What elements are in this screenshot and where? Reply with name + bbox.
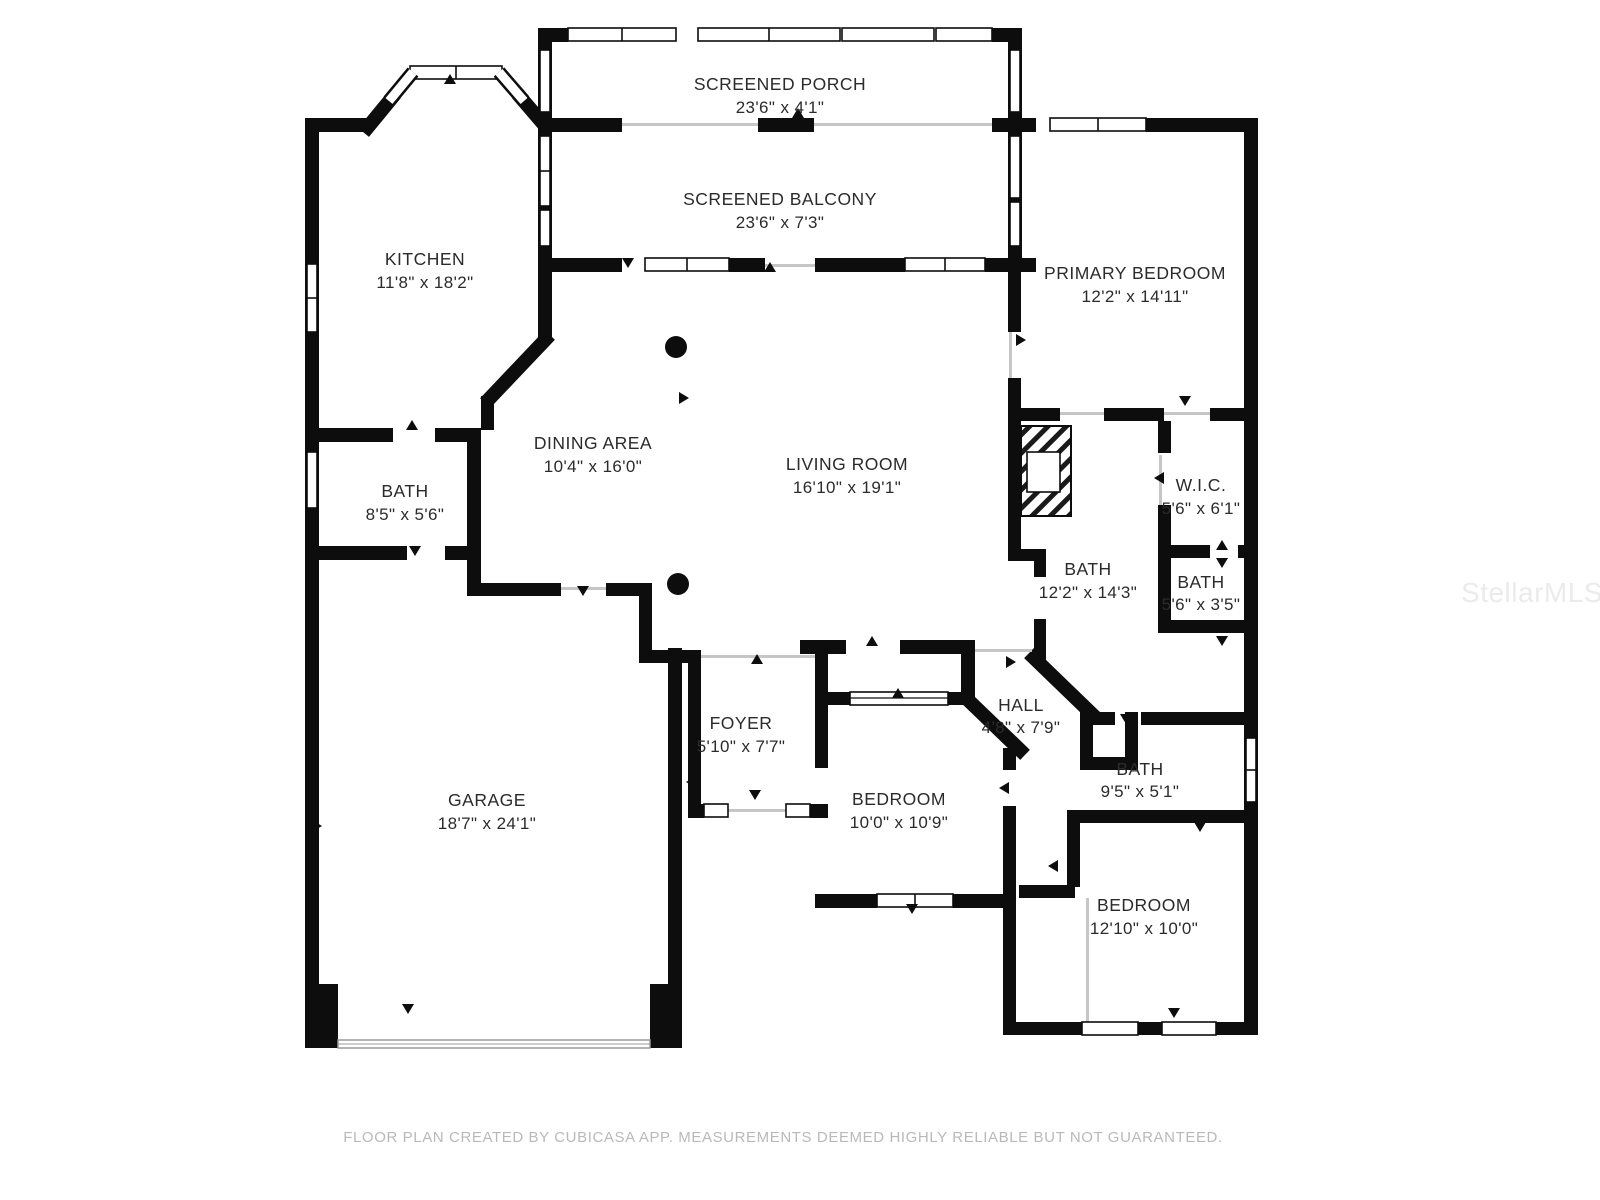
garage-door xyxy=(338,1040,650,1048)
label-bath-small: BATH xyxy=(1177,572,1224,592)
dims-foyer: 5'10" x 7'7" xyxy=(697,737,786,756)
footer-disclaimer: FLOOR PLAN CREATED BY CUBICASA APP. MEAS… xyxy=(343,1129,1223,1146)
dims-dining-area: 10'4" x 16'0" xyxy=(544,457,642,476)
label-garage: GARAGE xyxy=(448,790,526,810)
label-screened-balcony: SCREENED BALCONY xyxy=(683,189,877,209)
dims-screened-balcony: 23'6" x 7'3" xyxy=(736,213,825,232)
label-primary-bedroom: PRIMARY BEDROOM xyxy=(1044,263,1226,283)
label-kitchen: KITCHEN xyxy=(385,249,465,269)
dims-bedroom-br: 12'10" x 10'0" xyxy=(1090,919,1198,938)
dims-primary-bedroom: 12'2" x 14'11" xyxy=(1081,287,1188,306)
column-icon xyxy=(665,336,687,358)
floor-plan-page: SCREENED PORCH 23'6" x 4'1" SCREENED BAL… xyxy=(0,0,1600,1200)
dims-garage: 18'7" x 24'1" xyxy=(438,814,536,833)
label-bath-95: BATH xyxy=(1116,759,1163,779)
label-hall: HALL xyxy=(998,695,1044,715)
windows xyxy=(307,28,1256,1035)
dims-screened-porch: 23'6" x 4'1" xyxy=(736,98,825,117)
columns xyxy=(665,336,689,595)
label-living-room: LIVING ROOM xyxy=(786,454,908,474)
dims-kitchen: 11'8" x 18'2" xyxy=(376,273,473,292)
label-screened-porch: SCREENED PORCH xyxy=(694,74,866,94)
dims-bath-95: 9'5" x 5'1" xyxy=(1101,782,1180,801)
label-bedroom-br: BEDROOM xyxy=(1097,895,1191,915)
dims-living-room: 16'10" x 19'1" xyxy=(793,478,901,497)
label-wic: W.I.C. xyxy=(1176,475,1227,495)
dims-bedroom-mid: 10'0" x 10'9" xyxy=(850,813,948,832)
label-dining-area: DINING AREA xyxy=(534,433,652,453)
label-primary-bath: BATH xyxy=(1064,559,1111,579)
dims-bath-left: 8'5" x 5'6" xyxy=(366,505,445,524)
stellar-mls-watermark: StellarMLS xyxy=(1461,577,1600,608)
shower-hatch xyxy=(1021,426,1071,516)
label-bath-left: BATH xyxy=(381,481,428,501)
dims-primary-bath: 12'2" x 14'3" xyxy=(1039,583,1137,602)
label-foyer: FOYER xyxy=(710,713,773,733)
label-bedroom-mid: BEDROOM xyxy=(852,789,946,809)
column-icon xyxy=(667,573,689,595)
dims-hall: 4'8" x 7'9" xyxy=(982,718,1061,737)
dims-bath-small: 5'6" x 3'5" xyxy=(1162,595,1241,614)
dims-wic: 5'6" x 6'1" xyxy=(1162,499,1241,518)
floor-plan-drawing: SCREENED PORCH 23'6" x 4'1" SCREENED BAL… xyxy=(0,0,1600,1200)
